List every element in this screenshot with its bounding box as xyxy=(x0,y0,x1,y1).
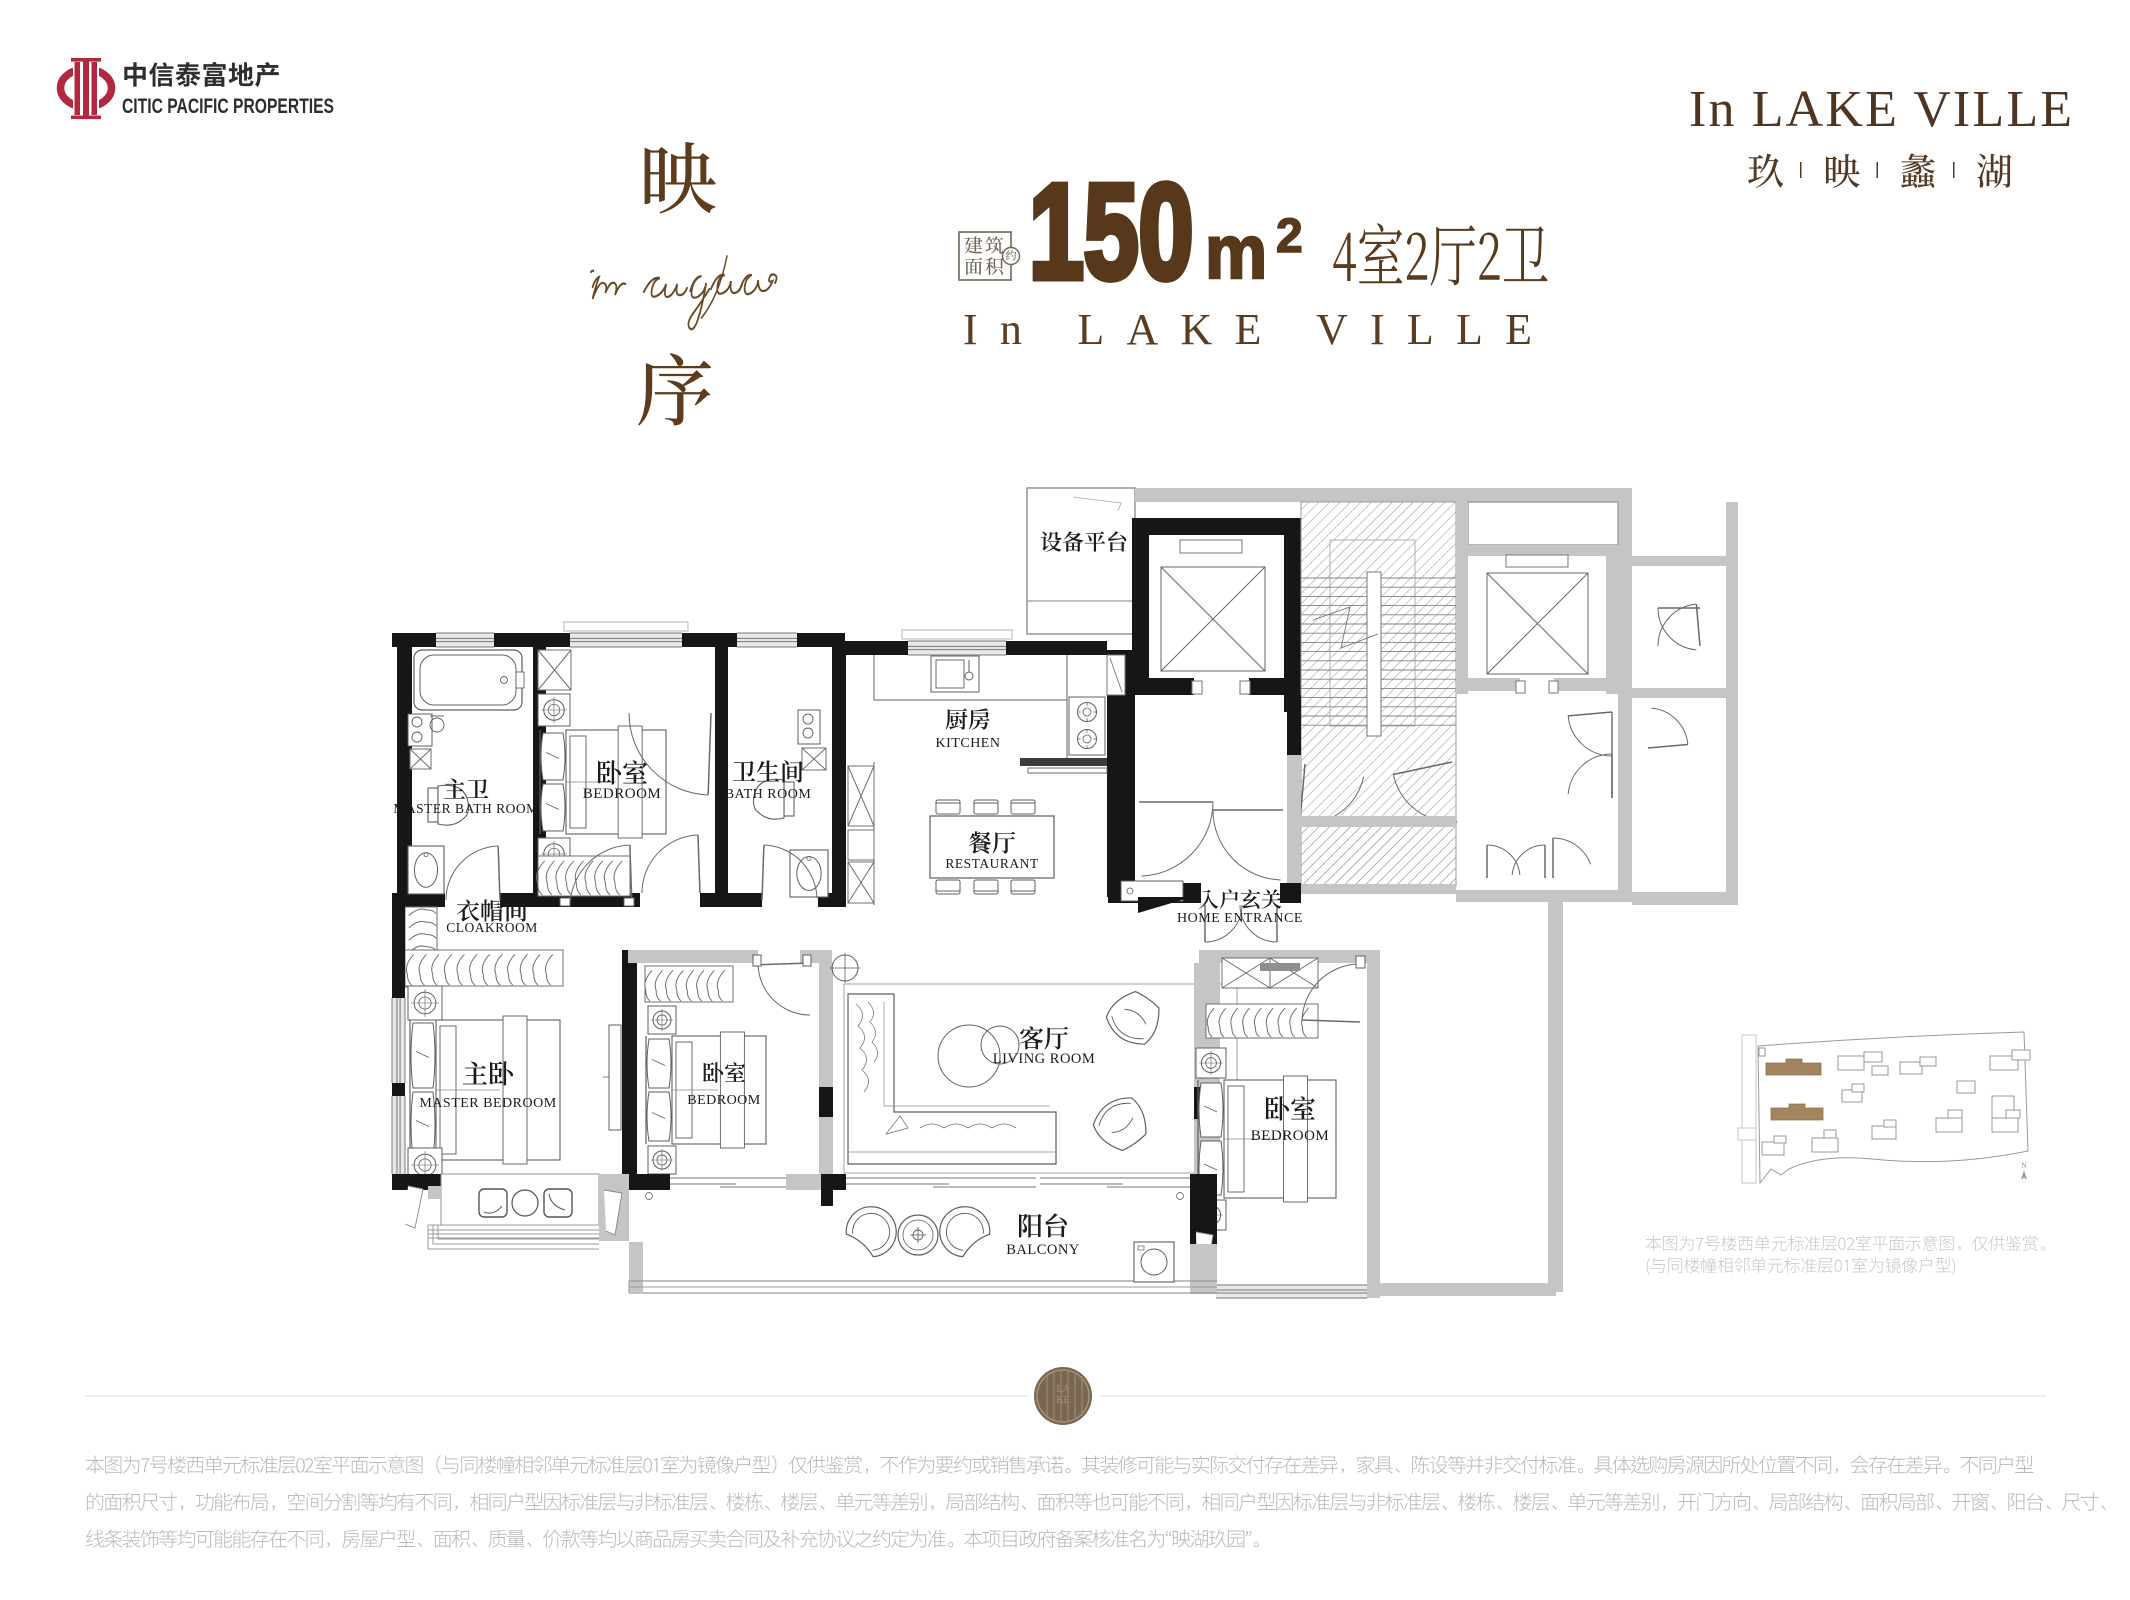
svg-text:MASTER BATH ROOM: MASTER BATH ROOM xyxy=(393,801,538,816)
svg-text:BALCONY: BALCONY xyxy=(1006,1242,1080,1258)
svg-text:N: N xyxy=(2021,1161,2027,1170)
svg-text:In LAKE VILLE: In LAKE VILLE xyxy=(963,305,1532,354)
svg-text:m: m xyxy=(1205,210,1267,294)
svg-text:CLOAKROOM: CLOAKROOM xyxy=(446,920,538,935)
svg-text:KE: KE xyxy=(1056,1395,1069,1406)
svg-text:BEDROOM: BEDROOM xyxy=(1251,1128,1330,1144)
svg-text:BEDROOM: BEDROOM xyxy=(687,1093,761,1108)
svg-text:In LAKE VILLE: In LAKE VILLE xyxy=(1689,81,2072,138)
svg-text:MASTER BEDROOM: MASTER BEDROOM xyxy=(419,1096,556,1111)
svg-text:KITCHEN: KITCHEN xyxy=(936,736,1001,751)
svg-text:BATH ROOM: BATH ROOM xyxy=(725,787,812,802)
svg-text:RESTAURANT: RESTAURANT xyxy=(945,856,1038,871)
svg-text:BEDROOM: BEDROOM xyxy=(583,786,662,802)
svg-text:150: 150 xyxy=(1029,157,1193,308)
svg-text:CITIC PACIFIC PROPERTIES: CITIC PACIFIC PROPERTIES xyxy=(122,94,334,118)
svg-text:2: 2 xyxy=(1276,210,1303,263)
svg-text:LIVING ROOM: LIVING ROOM xyxy=(993,1051,1096,1067)
svg-text:HOME ENTRANCE: HOME ENTRANCE xyxy=(1177,911,1303,926)
svg-text:LA: LA xyxy=(1056,1384,1070,1395)
